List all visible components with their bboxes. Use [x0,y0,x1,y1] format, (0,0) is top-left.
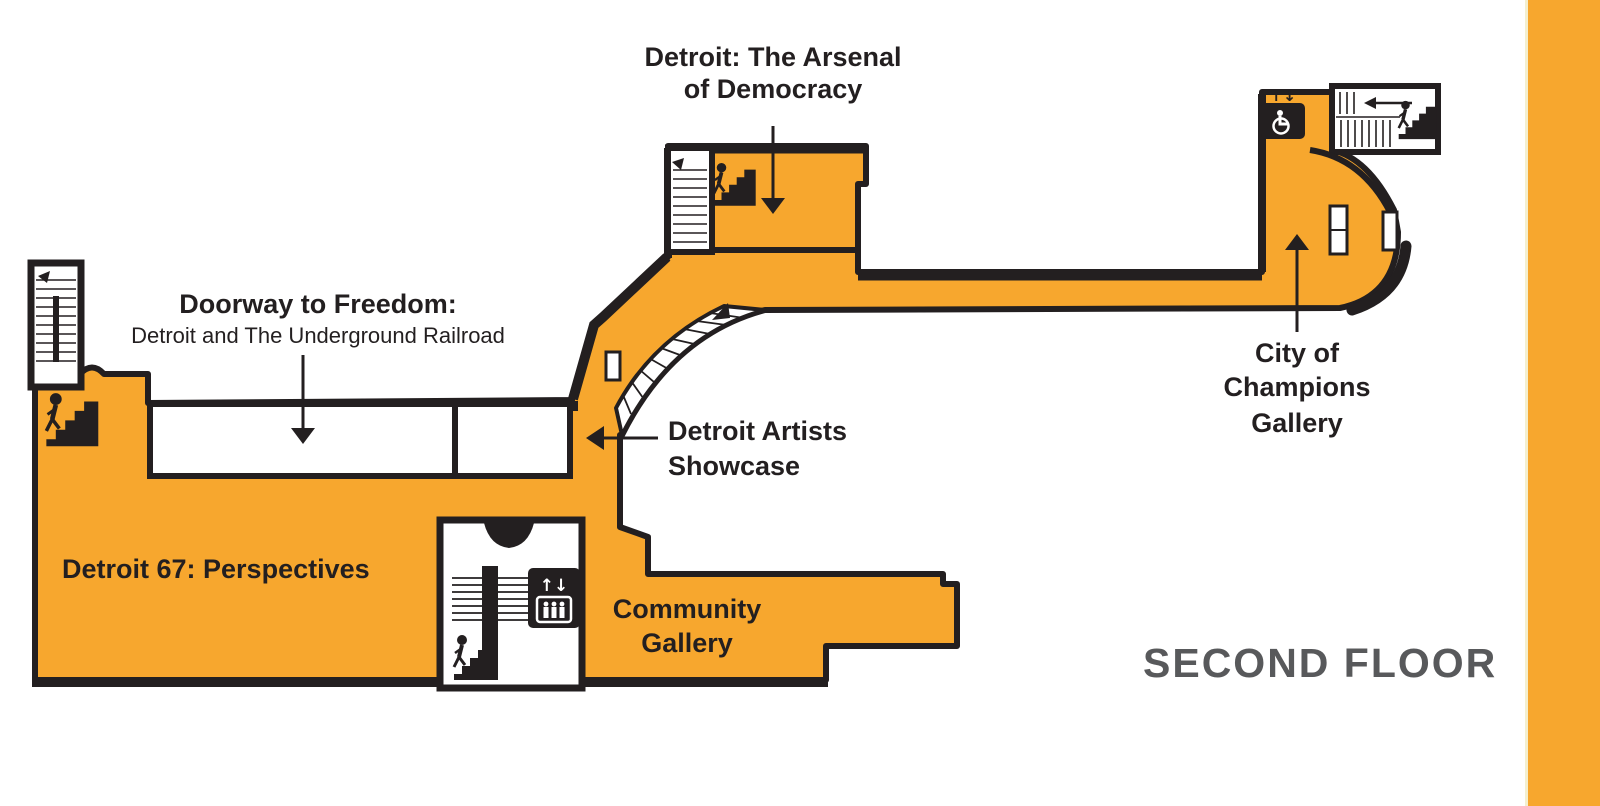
label-detroit67: Detroit 67: Perspectives [62,554,370,584]
label-artists-line1: Detroit Artists [668,416,847,446]
northwest-stairwell [31,263,81,387]
stair-door [606,352,620,380]
label-community-line1: Community [613,594,762,624]
label-doorway-line2: Detroit and The Underground Railroad [131,323,505,348]
svg-text:↑↓: ↑↓ [540,576,569,596]
floor-label: SECOND FLOOR [1143,640,1497,686]
page-canvas: ↑↓ [0,0,1600,806]
label-city-line1: City of [1255,338,1340,368]
label-city-line3: Gallery [1251,408,1343,438]
label-doorway-line1: Doorway to Freedom: [179,289,457,319]
arsenal-stairwell [668,148,712,252]
accent-bar [1525,0,1600,806]
label-community-line2: Gallery [641,628,733,658]
central-stairwell: ↑↓ [440,520,582,688]
svg-text:↑↓: ↑↓ [1270,86,1297,105]
label-arsenal-line1: Detroit: The Arsenal [644,42,901,72]
floorplan-map: ↑↓ [0,0,1600,806]
label-artists-line2: Showcase [668,451,800,481]
northeast-stairwell [1332,86,1438,152]
label-city-line2: Champions [1223,372,1370,402]
label-arsenal-line2: of Democracy [684,74,863,104]
display-case [1383,212,1397,250]
doorway-gallery-rooms [150,404,570,476]
elevator-people-icon: ↑↓ [528,568,580,628]
